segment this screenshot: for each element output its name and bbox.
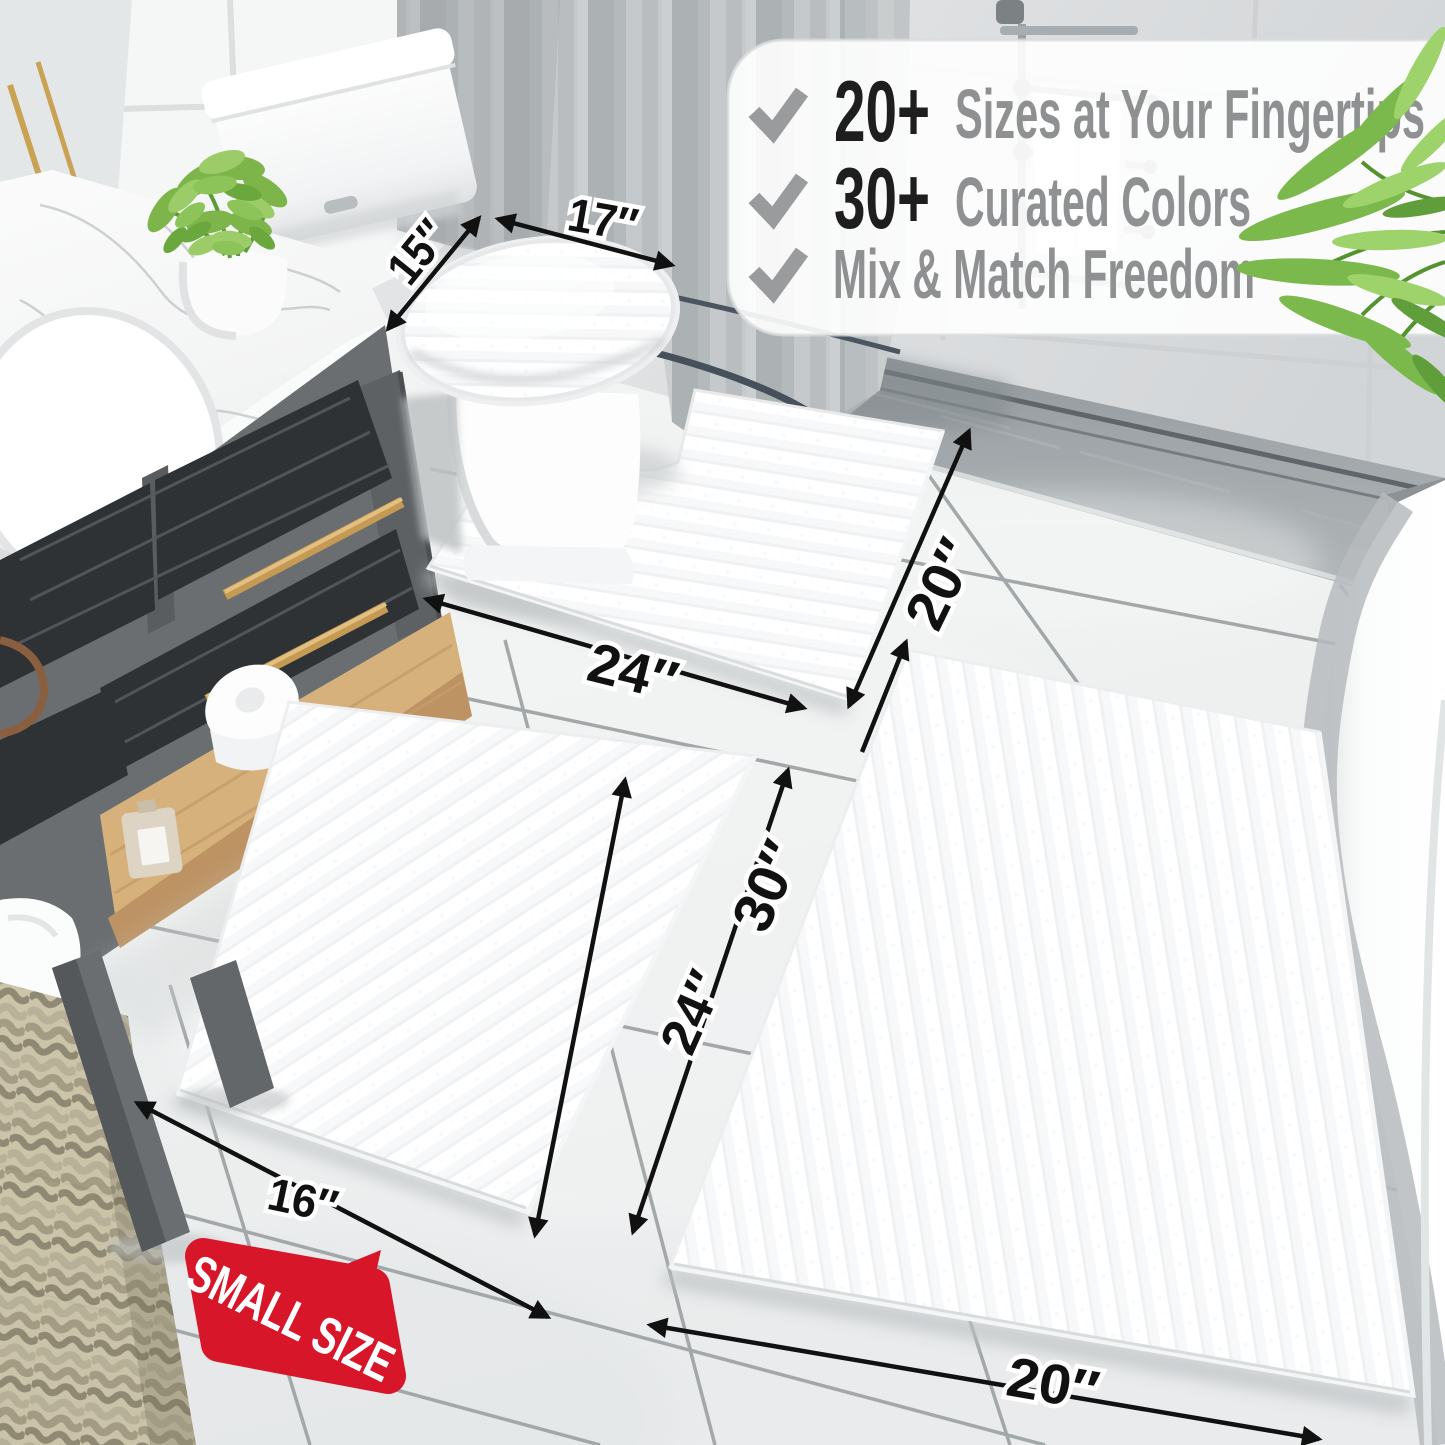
svg-text:Curated Colors: Curated Colors	[955, 163, 1251, 241]
svg-text:20+: 20+	[834, 64, 930, 160]
svg-text:30+: 30+	[834, 151, 930, 247]
svg-text:Mix & Match Freedom: Mix & Match Freedom	[833, 235, 1255, 313]
